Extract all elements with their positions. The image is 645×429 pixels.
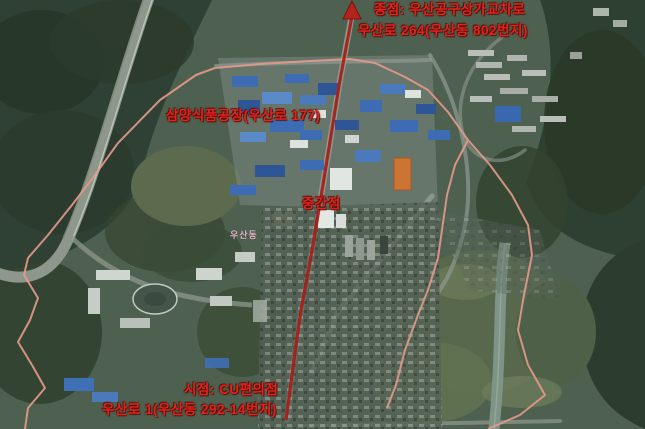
map-background bbox=[0, 0, 645, 429]
factory-label: 삼양식품공장(우산로 177) bbox=[166, 109, 321, 124]
start-point-label-line2: 우산로 1(우산동 292-14번지) bbox=[102, 403, 277, 418]
district-label: 우산동 bbox=[230, 231, 258, 241]
end-point-label-line2: 우산로 264(우산동 802번지) bbox=[358, 24, 528, 39]
industrial-area bbox=[218, 55, 450, 210]
start-point-label-line1: 시점: CU편의점 bbox=[184, 383, 278, 398]
mid-point-label: 중간점 bbox=[302, 197, 341, 212]
end-point-label-line1: 종점: 우산공구상가교차로 bbox=[374, 3, 525, 18]
satellite-map: 종점: 우산공구상가교차로 우산로 264(우산동 802번지) 삼양식품공장(… bbox=[0, 0, 645, 429]
